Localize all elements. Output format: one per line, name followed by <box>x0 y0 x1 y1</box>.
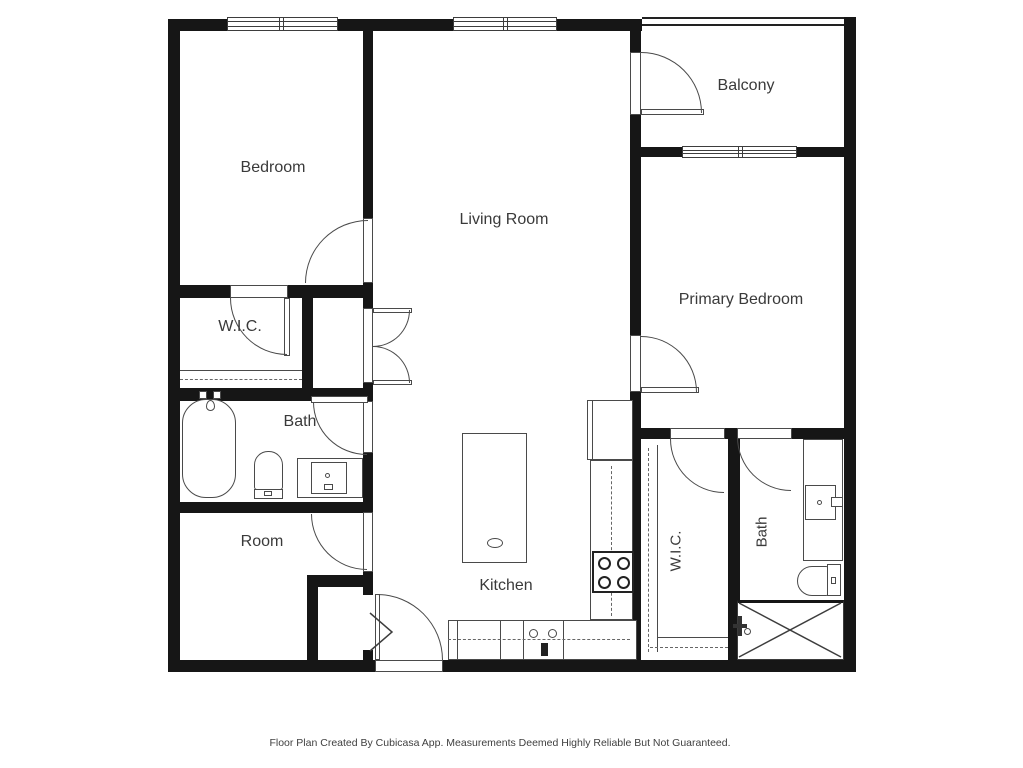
primary-door-opening <box>630 335 641 392</box>
closet-shelf-line <box>657 445 658 652</box>
stove-burner <box>598 576 611 589</box>
kitchen-sink-knob <box>529 629 538 638</box>
entry-door-arc <box>377 594 443 660</box>
wall-room-right <box>307 587 318 660</box>
sink-faucet <box>324 484 333 490</box>
bathtub-faucet-handle <box>199 391 207 399</box>
balcony-window <box>682 146 797 158</box>
bathtub-faucet-handle <box>213 391 221 399</box>
stove <box>592 551 634 593</box>
closet-rod-line <box>180 379 302 380</box>
closet-door-arc-upper <box>373 310 410 347</box>
toilet-flush-button <box>831 577 836 584</box>
counter-divider <box>523 620 524 660</box>
closet-door-arc-lower <box>373 346 410 383</box>
toilet-flush-button <box>264 491 272 496</box>
room-label-bath-lower: Bath <box>755 517 770 548</box>
toilet-bowl <box>797 566 829 596</box>
kitchen-sink-knob <box>548 629 557 638</box>
wall-balcony-left-upper <box>630 31 641 52</box>
footer-disclaimer: Floor Plan Created By Cubicasa App. Meas… <box>269 737 730 749</box>
closet-double-door-opening <box>363 308 373 383</box>
wic-door-opening <box>230 285 288 298</box>
shower-valve-handle <box>733 624 747 628</box>
counter-dashed-line <box>448 639 630 640</box>
closet-shelf-line <box>657 637 728 638</box>
room-label-bath-upper: Bath <box>284 414 317 430</box>
shower <box>737 600 844 660</box>
room-label-living-room: Living Room <box>460 212 549 228</box>
balcony-door-arc <box>641 52 702 113</box>
wall-wic-right <box>302 298 313 400</box>
window-mullion <box>738 147 743 157</box>
floor-plan: Bedroom Living Room Balcony Primary Bedr… <box>0 0 1023 768</box>
wic2-door-opening <box>670 428 725 439</box>
counter-divider <box>563 620 564 660</box>
balcony-railing <box>642 17 844 26</box>
refrigerator-door-line <box>592 401 593 459</box>
bedroom-door-arc <box>305 220 368 283</box>
bedroom-window <box>227 17 338 31</box>
wic2-door-arc <box>670 439 724 493</box>
primary-door-arc <box>641 336 697 392</box>
wall-closet-top <box>307 575 373 587</box>
sink-drain-dot <box>817 500 822 505</box>
room-label-primary-bedroom: Primary Bedroom <box>679 292 803 308</box>
room-label-wic-upper: W.I.C. <box>218 319 262 335</box>
refrigerator <box>587 400 633 460</box>
room-door-arc <box>311 514 367 570</box>
living-room-window <box>453 17 557 31</box>
counter-edge-dashed <box>611 466 612 616</box>
wall-right <box>844 17 856 672</box>
room-label-room: Room <box>241 534 284 550</box>
counter-divider <box>500 620 501 660</box>
wall-bath-bottom <box>168 502 373 513</box>
wall-bottom <box>168 660 856 672</box>
sink-faucet <box>831 497 843 507</box>
bathtub-spout <box>206 400 215 411</box>
shower-valve-dot <box>744 628 751 635</box>
bath2-door-arc <box>737 437 791 491</box>
island-sink <box>487 538 503 548</box>
window-mullion <box>279 18 284 30</box>
bathtub <box>182 399 236 498</box>
room-label-wic-lower: W.I.C. <box>669 531 684 572</box>
balcony-door-opening <box>630 52 641 115</box>
sink-drain-dot <box>325 473 330 478</box>
room-label-balcony: Balcony <box>718 78 775 94</box>
stove-burner <box>598 557 611 570</box>
kitchen-sink-faucet <box>541 643 548 656</box>
toilet-bowl <box>254 451 283 490</box>
wall-closet-stub <box>363 650 373 660</box>
bath-door-arc <box>313 402 367 455</box>
room-label-bedroom: Bedroom <box>241 160 306 176</box>
wall-left <box>168 19 180 672</box>
counter-divider <box>457 620 458 660</box>
closet-rod-line <box>650 647 728 648</box>
wall-bedroom-living-a <box>363 31 373 218</box>
window-mullion <box>503 18 508 30</box>
entry-door-opening <box>375 660 443 672</box>
closet-shelf-line <box>180 370 302 371</box>
room-label-kitchen: Kitchen <box>479 578 532 594</box>
closet-rod-line <box>648 448 649 652</box>
stove-burner <box>617 557 630 570</box>
stove-burner <box>617 576 630 589</box>
